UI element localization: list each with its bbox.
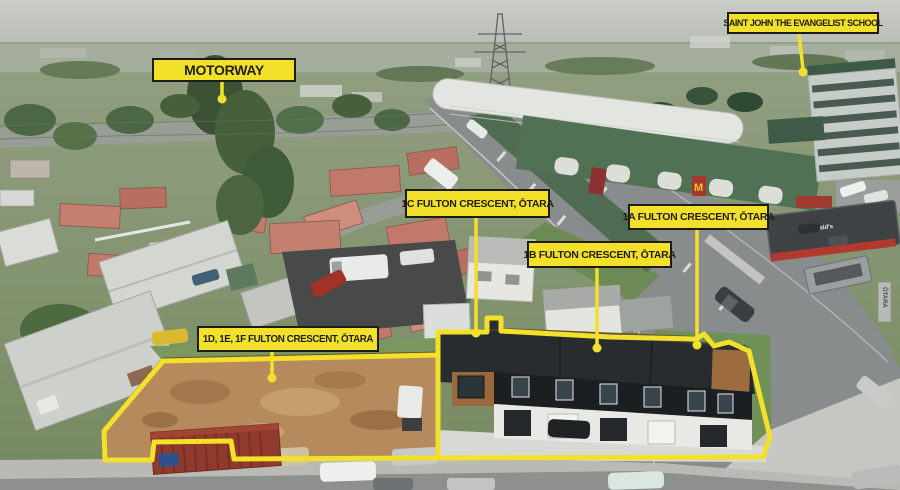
wood-cladding	[711, 349, 750, 392]
aerial-listing-photo: McDonald's M ŌTARA	[0, 0, 900, 490]
leader-dot-motorway	[218, 95, 227, 104]
house	[619, 296, 674, 332]
label-unit-1b: 1B FULTON CRESCENT, ŌTARA	[527, 241, 672, 268]
container-label	[158, 453, 179, 467]
house	[0, 190, 34, 206]
aerial-scene: McDonald's M ŌTARA	[0, 0, 900, 490]
green-roof-block	[767, 116, 825, 144]
house	[120, 187, 167, 209]
leader-dot-1b	[593, 344, 602, 353]
label-unit-1c: 1C FULTON CRESCENT, ŌTARA	[405, 189, 550, 218]
label-school: SAINT JOHN THE EVANGELIST SCHOOL	[727, 12, 879, 34]
red-storefront	[796, 196, 832, 208]
parked-car	[548, 419, 591, 439]
shipping-container	[151, 424, 282, 475]
car	[320, 461, 377, 482]
trailer	[402, 418, 422, 431]
leader-dot-1a	[693, 341, 702, 350]
house	[10, 160, 50, 178]
car	[373, 478, 413, 490]
house	[329, 166, 401, 197]
road-pillar-text: ŌTARA	[881, 287, 888, 309]
car	[608, 471, 665, 490]
white-van	[397, 385, 423, 419]
leader-dot-school	[799, 68, 808, 77]
golden-arches: M	[694, 182, 703, 194]
window	[458, 376, 484, 398]
label-unit-1a: 1A FULTON CRESCENT, ŌTARA	[628, 204, 769, 230]
car	[447, 478, 495, 490]
leader-dot-1c	[472, 329, 481, 338]
label-motorway: MOTORWAY	[152, 58, 296, 82]
leader-dot-1def	[268, 374, 277, 383]
label-units-1def: 1D, 1E, 1F FULTON CRESCENT, ŌTARA	[197, 326, 379, 352]
house	[59, 203, 120, 228]
